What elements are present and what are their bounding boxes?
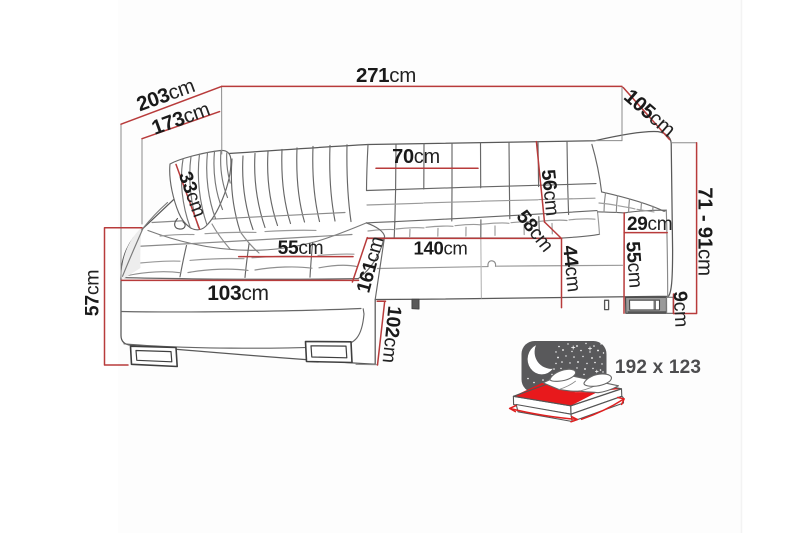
svg-text:103cm: 103cm: [207, 282, 269, 305]
svg-text:140cm: 140cm: [413, 238, 467, 259]
svg-text:70cm: 70cm: [392, 146, 440, 168]
svg-text:9cm: 9cm: [669, 291, 693, 328]
svg-text:55cm: 55cm: [278, 238, 324, 259]
svg-text:71 - 91cm: 71 - 91cm: [693, 187, 716, 275]
svg-text:57cm: 57cm: [82, 270, 104, 317]
svg-text:55cm: 55cm: [621, 241, 646, 289]
svg-text:271cm: 271cm: [356, 64, 416, 87]
svg-text:29cm: 29cm: [627, 214, 672, 235]
svg-text:192 x 123: 192 x 123: [615, 357, 701, 378]
